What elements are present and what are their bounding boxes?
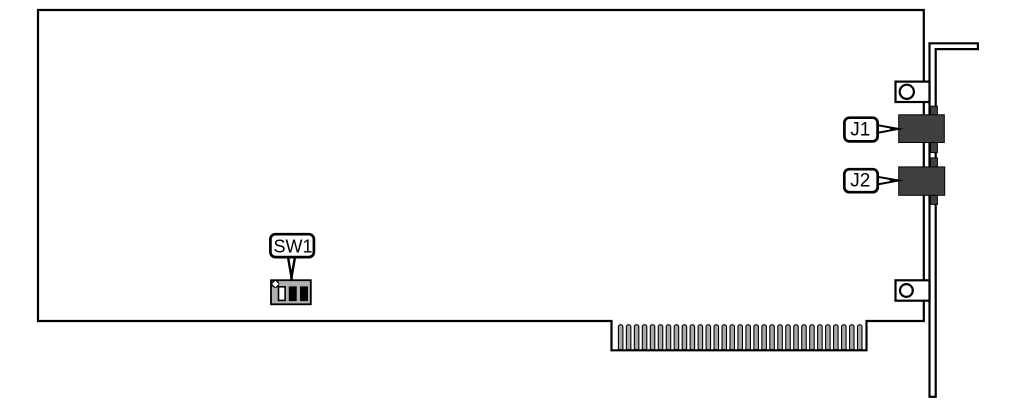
svg-text:J1: J1	[850, 119, 870, 140]
svg-text:J2: J2	[850, 171, 870, 192]
svg-text:SW1: SW1	[273, 236, 312, 256]
